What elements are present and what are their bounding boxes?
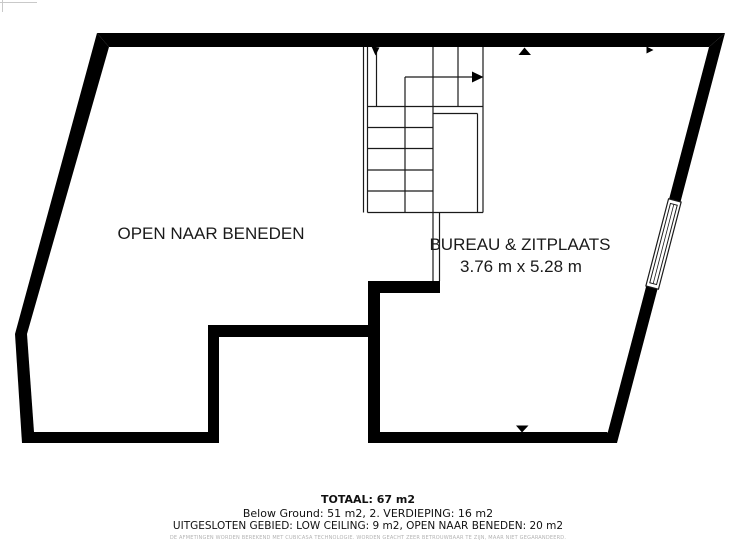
wall-notch-horizontal bbox=[208, 325, 380, 337]
wall-marker-top-icon bbox=[519, 48, 532, 56]
wall-center-vertical bbox=[368, 281, 380, 443]
wall-left-upper bbox=[15, 33, 109, 334]
window bbox=[646, 199, 681, 289]
wall-notch-vertical bbox=[208, 325, 219, 443]
stairs-start-arrow-icon bbox=[372, 47, 380, 56]
wall-marker-right-icon bbox=[647, 47, 654, 54]
wall-interior-horizontal bbox=[368, 281, 440, 293]
summary-total: TOTAAL: 67 m2 bbox=[0, 493, 736, 506]
summary-excluded-areas: UITGESLOTEN GEBIED: LOW CEILING: 9 m2, O… bbox=[0, 520, 736, 532]
floor-plan-canvas: OPEN NAAR BENEDEN BUREAU & ZITPLAATS 3.7… bbox=[0, 0, 736, 552]
stairs-direction-arrow-icon bbox=[472, 72, 484, 83]
summary-floors: Below Ground: 51 m2, 2. VERDIEPING: 16 m… bbox=[0, 507, 736, 520]
room-label-open-naar-beneden: OPEN NAAR BENEDEN bbox=[117, 224, 304, 243]
wall-marker-bottom-icon bbox=[516, 426, 529, 433]
room-label-bureau: BUREAU & ZITPLAATS bbox=[429, 235, 610, 254]
room-dimensions-bureau: 3.76 m x 5.28 m bbox=[460, 257, 582, 276]
wall-bottom-right bbox=[374, 432, 616, 443]
wall-bottom-left bbox=[23, 432, 219, 443]
wall-top bbox=[97, 33, 725, 47]
wall-left-lower bbox=[15, 334, 34, 443]
floor-plan-page: OPEN NAAR BENEDEN BUREAU & ZITPLAATS 3.7… bbox=[0, 0, 736, 552]
summary-disclaimer: DE AFMETINGEN WORDEN BEREKEND MET CUBICA… bbox=[0, 535, 736, 541]
